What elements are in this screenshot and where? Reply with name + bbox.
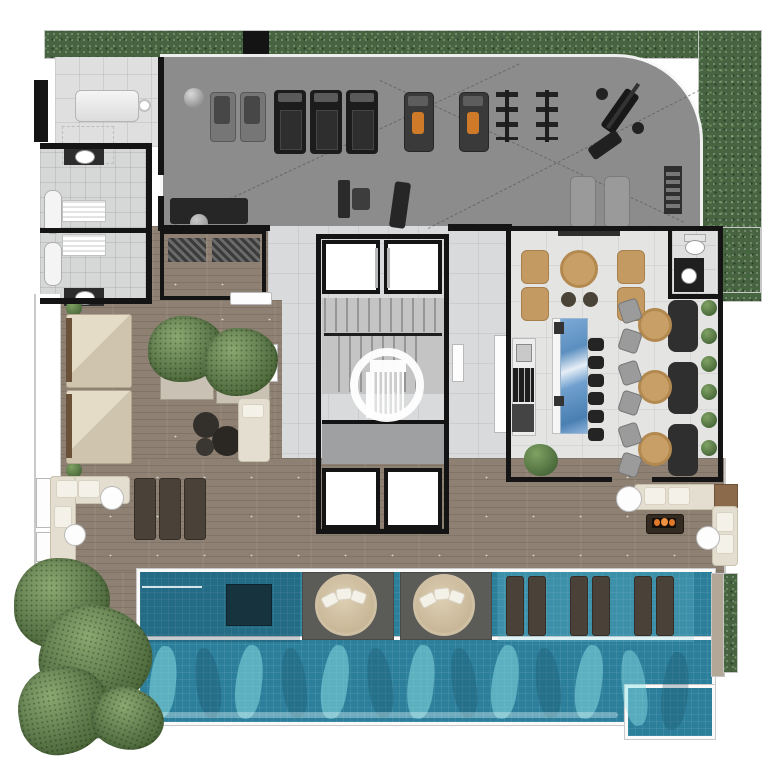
wall-bath-mid-divider (40, 228, 152, 233)
barbell-plate (596, 88, 608, 100)
lobby-bench (452, 344, 464, 382)
dining-table (638, 432, 672, 466)
wall-hedge-bush (701, 356, 717, 372)
gym-bench-sofa (170, 198, 248, 224)
developer-logo-building-column (366, 372, 373, 418)
daybed-frame (66, 318, 72, 382)
core-wall-top (316, 234, 449, 239)
sofa-cushion (56, 480, 78, 498)
wall-hedge-bush (701, 440, 717, 456)
coffee-table (560, 250, 598, 288)
elevator-machine-band (322, 424, 444, 464)
dining-banquette (668, 424, 698, 476)
pool-lap-line (142, 586, 202, 588)
sofa-cushion (644, 487, 666, 505)
incline-bench-pad (214, 96, 230, 124)
round-ottoman (196, 438, 214, 456)
wet-deck-bench (226, 584, 272, 626)
sun-lounger (159, 478, 181, 540)
incline-bench-pad (244, 96, 260, 124)
kitchen-cooktop (512, 368, 534, 402)
side-table (616, 486, 642, 512)
dining-banquette (668, 362, 698, 414)
wall-bath-right (146, 147, 152, 304)
wall-left-of-spa (34, 80, 48, 142)
gym-mat (604, 176, 630, 228)
core-wall-bottom (316, 529, 449, 534)
elevator-door (387, 248, 390, 288)
sofa-wood-corner (714, 484, 738, 508)
sofa-cushion (668, 487, 690, 505)
submerged-lounger (506, 576, 524, 636)
wall-hedge-bush (701, 328, 717, 344)
pouf (583, 292, 598, 307)
weight-rack-post (545, 90, 549, 142)
daybed (66, 314, 132, 388)
storage-shelf (168, 238, 206, 262)
massage-table (75, 90, 139, 122)
submerged-lounger (570, 576, 588, 636)
bathtub (44, 242, 62, 286)
powder-toilet (685, 240, 705, 255)
armchair (521, 287, 549, 321)
treadmill-console (314, 93, 338, 102)
wall-powder-left (668, 226, 672, 298)
submerged-lounger (634, 576, 652, 636)
sofa-cushion (78, 480, 100, 498)
gym-mat (570, 176, 596, 228)
elevator-cab (322, 240, 380, 294)
island-appliance (554, 322, 564, 334)
bench-pillow (242, 404, 264, 418)
wall-ladder (664, 166, 682, 214)
island-stool (588, 410, 604, 423)
hedge-top-band (45, 31, 728, 58)
floor-plan (0, 0, 777, 768)
towel-shelf (62, 234, 106, 256)
island-stool (588, 338, 604, 351)
armchair (521, 250, 549, 284)
cable-machine-arm (352, 188, 370, 210)
kitchen-sink (516, 344, 532, 362)
machine-pads (408, 96, 428, 106)
exercise-ball (184, 88, 204, 108)
dining-table (638, 370, 672, 404)
fire-flame (661, 518, 668, 526)
side-table (100, 486, 124, 510)
core-wall-left (316, 234, 321, 534)
wall-lounge-bottom-left (510, 477, 612, 482)
island-stool (588, 428, 604, 441)
weight-rack-post (505, 90, 509, 142)
wall-gym-bottom-left (158, 225, 270, 231)
towel-shelf (62, 200, 106, 222)
treadmill-console (350, 93, 374, 102)
hedge-gate-block (243, 31, 269, 59)
treadmill-belt (280, 110, 302, 150)
submerged-lounger (528, 576, 546, 636)
wall-hedge-bush (701, 412, 717, 428)
side-table (64, 524, 86, 546)
island-stool (588, 392, 604, 405)
pool-side-hedge (724, 574, 737, 672)
wall-hedge-bush (701, 300, 717, 316)
wall-spa-bath-divider (40, 143, 152, 149)
planter-pot (524, 444, 558, 476)
wall-powder-bottom (668, 294, 720, 299)
armchair (617, 250, 645, 284)
machine-seat-orange (412, 112, 424, 134)
wall-gym-bottom-right (448, 224, 512, 231)
powder-sink (681, 268, 697, 284)
fire-flame (654, 519, 660, 526)
wall-gym-left-upper (158, 57, 164, 175)
developer-logo-building-body (372, 372, 404, 418)
dining-table (638, 308, 672, 342)
powder-hedge-patch (718, 228, 760, 292)
pool-side-stone-path (712, 574, 724, 676)
wall-lounge-right (718, 226, 723, 482)
wall-lounge-bottom-right (652, 477, 723, 482)
pouf (561, 292, 576, 307)
island-appliance (554, 396, 564, 406)
submerged-lounger (656, 576, 674, 636)
machine-pads (463, 96, 483, 106)
wall-bath-bottom (40, 298, 152, 304)
treadmill-belt (352, 110, 374, 150)
dining-banquette (668, 300, 698, 352)
sun-lounger (184, 478, 206, 540)
kitchen-base-cabinet (512, 404, 534, 432)
wall-hedge-bush (701, 384, 717, 400)
submerged-lounger (592, 576, 610, 636)
stair-flight-upper (324, 298, 442, 332)
fire-flame (669, 519, 675, 526)
hall-bench (230, 292, 272, 305)
island-stool (588, 356, 604, 369)
wall-lounge-top (510, 226, 722, 231)
barbell-plate (632, 122, 644, 134)
island-stool (588, 374, 604, 387)
elevator-cab (384, 468, 442, 529)
core-wall-right (444, 234, 449, 534)
pool-ledge-shade (140, 572, 300, 642)
elevator-door (375, 248, 378, 288)
elevator-cab (384, 240, 442, 294)
treadmill-belt (316, 110, 338, 150)
sun-lounger (134, 478, 156, 540)
storage-shelf (212, 238, 260, 262)
daybed (66, 390, 132, 464)
side-table (696, 526, 720, 550)
pool-edge-ripple (148, 712, 618, 718)
toilet (75, 150, 95, 164)
daybed-frame (66, 394, 72, 458)
treadmill-console (278, 93, 302, 102)
elevator-cab (322, 468, 380, 529)
massage-headrest (138, 99, 151, 112)
wall-lounge-left (506, 226, 511, 482)
machine-seat-orange (467, 112, 479, 134)
developer-logo-building-cap (370, 360, 406, 372)
cable-machine (338, 180, 350, 218)
sofa-cushion (716, 512, 734, 532)
kitchen-island-marble-top (560, 318, 588, 434)
